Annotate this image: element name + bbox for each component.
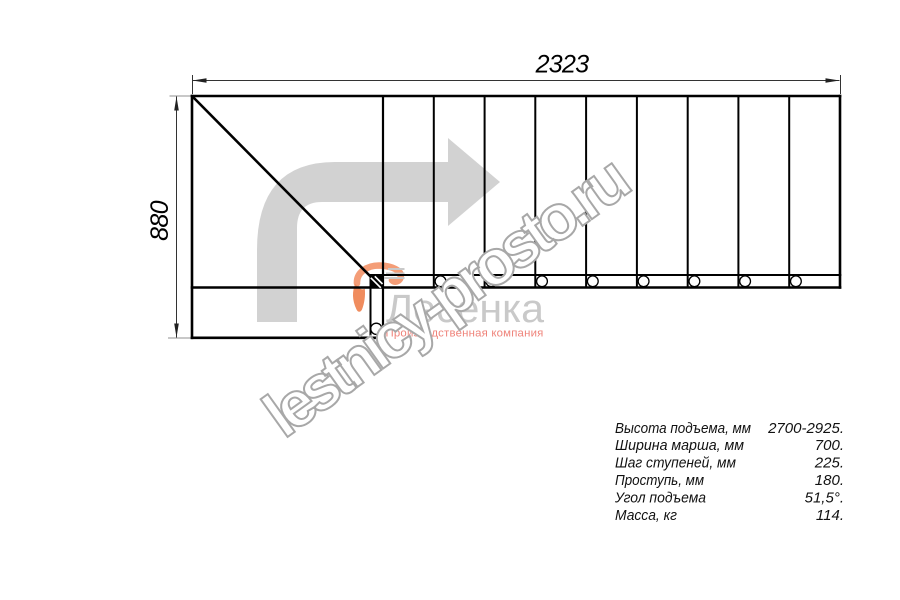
- svg-text:Ширина марша, мм: Ширина марша, мм: [615, 437, 744, 454]
- svg-text:2700-2925.: 2700-2925.: [767, 420, 844, 437]
- svg-text:880: 880: [146, 200, 174, 240]
- svg-text:225.: 225.: [814, 455, 844, 472]
- svg-text:114.: 114.: [816, 507, 844, 524]
- svg-text:700.: 700.: [815, 437, 844, 454]
- svg-text:Проступь, мм: Проступь, мм: [615, 472, 704, 489]
- svg-text:180.: 180.: [815, 472, 844, 489]
- svg-text:51,5°.: 51,5°.: [805, 489, 844, 506]
- svg-text:Угол подъема: Угол подъема: [614, 489, 706, 506]
- svg-text:Высота подъема, мм: Высота подъема, мм: [615, 420, 751, 437]
- svg-text:2323: 2323: [535, 51, 590, 79]
- svg-text:Масса, кг: Масса, кг: [615, 507, 678, 524]
- svg-text:Шаг ступеней, мм: Шаг ступеней, мм: [615, 455, 736, 472]
